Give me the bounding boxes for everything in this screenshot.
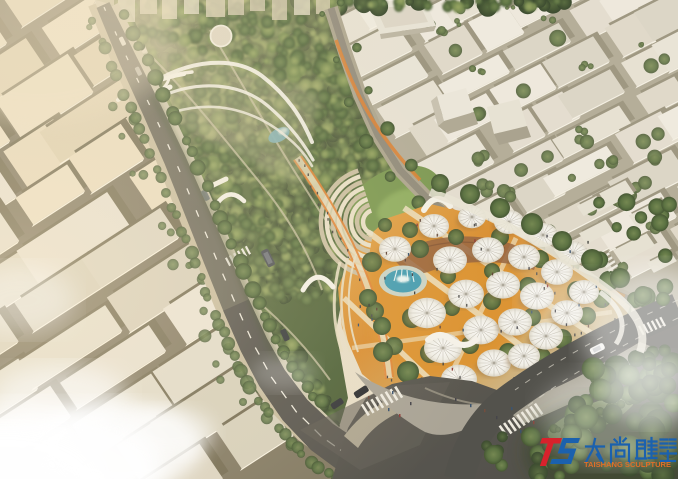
svg-text:TAISHANG SCULPTURE: TAISHANG SCULPTURE bbox=[584, 462, 671, 469]
